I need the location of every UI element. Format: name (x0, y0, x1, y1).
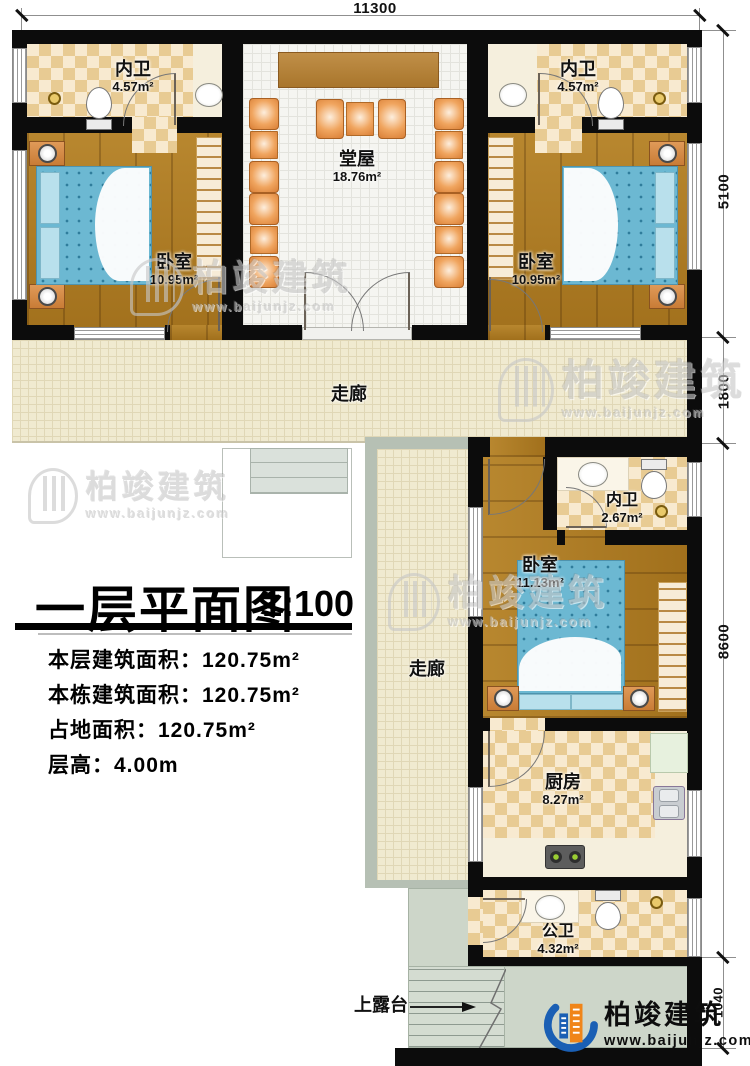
terrace-arrow-line (410, 1006, 462, 1008)
room-name: 走廊 (377, 660, 477, 679)
window-corridor-kitchen (468, 787, 483, 862)
wall-bottom-seg3 (243, 325, 302, 340)
room-name: 卧室 (124, 253, 224, 272)
room-label-bed-left: 卧室 10.95m² (124, 253, 224, 287)
wall-hall-left (222, 44, 243, 340)
chair-icon (378, 99, 406, 139)
title-underline (15, 623, 352, 630)
wall-hall-right (467, 44, 488, 340)
side-table-icon (435, 226, 463, 254)
foot-cushion (519, 694, 571, 710)
dim-ext (702, 443, 736, 444)
room-label-bath-tr: 内卫 4.57m² (528, 60, 628, 94)
nightstand (649, 284, 685, 309)
room-name: 内卫 (572, 493, 672, 510)
room-label-bath-tl: 内卫 4.57m² (83, 60, 183, 94)
side-table-icon (435, 131, 463, 159)
info-land-area: 占地面积：120.75m² (48, 714, 256, 744)
room-label-terrace: 上露台 (344, 996, 408, 1015)
room-name: 上露台 (344, 996, 408, 1015)
wall-right-lower (687, 443, 702, 1066)
wall-bathb-bottom (472, 957, 702, 966)
info-storey-height: 层高：4.00m (48, 749, 179, 779)
watermark-brand: 柏竣建筑 (86, 471, 230, 503)
wall-lowerunit-top-b (545, 437, 702, 457)
wall-lamp-icon (48, 92, 61, 105)
wall-kitchen-bathb (483, 877, 687, 890)
burner (569, 851, 581, 863)
sink-icon (535, 895, 565, 920)
toilet-tank (595, 890, 621, 901)
dim-top-label: 11300 (337, 0, 413, 17)
window-right-bath-middle (687, 462, 702, 517)
window-right-bath-bottom (687, 898, 702, 957)
terrace-arrow-icon (462, 1002, 476, 1012)
brand-logo-icon (540, 998, 598, 1052)
room-area: 8.27m² (513, 792, 613, 807)
wall-bed-kitchen-b (545, 718, 687, 731)
wall-lamp-icon (650, 896, 663, 909)
burner (550, 851, 562, 863)
lamp-icon (658, 144, 677, 163)
side-table-icon (250, 131, 278, 159)
entry-steps (250, 448, 348, 494)
room-name: 卧室 (486, 253, 586, 272)
chair-icon (249, 193, 279, 225)
title-underline-shadow (38, 633, 352, 635)
pillow (40, 227, 60, 279)
wall-divider-left-a (27, 117, 132, 133)
lamp-icon (658, 287, 677, 306)
lamp-icon (630, 689, 649, 708)
room-area: 4.57m² (528, 79, 628, 94)
room-name: 堂屋 (305, 150, 409, 169)
sink-icon (578, 462, 608, 487)
wall-lamp-icon (653, 92, 666, 105)
toilet-tank (641, 459, 667, 470)
floor-plan: 内卫 4.57m² 内卫 4.57m² 堂屋 18.76m² 卧室 10.95m… (0, 0, 750, 1066)
room-area: 4.32m² (508, 941, 608, 956)
room-label-corridor-v: 走廊 (377, 660, 477, 679)
chair-icon (434, 161, 464, 193)
sink-icon (499, 83, 527, 107)
wall-bottom-seg4 (412, 325, 467, 340)
pillow (655, 227, 675, 279)
wall-bathm-bottom-b (605, 530, 687, 545)
terrace-upper (408, 888, 472, 968)
wall-bathm-bottom-a (557, 530, 565, 545)
side-table-icon (250, 226, 278, 254)
window-left-bath (12, 48, 27, 103)
toilet-tank (598, 119, 624, 130)
brand-text: 柏竣建筑 www.baijunjz.com (604, 1002, 750, 1049)
pillow (655, 172, 675, 224)
chair-icon (249, 161, 279, 193)
chair-icon (434, 193, 464, 225)
bed-sheet (519, 637, 621, 691)
wall-bottom-seg6 (641, 325, 702, 340)
window-right-kitchen (687, 790, 702, 857)
nightstand (487, 686, 519, 711)
wall-bathm-left (543, 457, 557, 530)
drawing-scale: 1:100 (262, 583, 354, 625)
window-corridor-bedroom-middle (468, 507, 483, 617)
room-area: 11.13m² (490, 575, 590, 590)
toilet-tank (86, 119, 112, 130)
chair-icon (249, 256, 279, 288)
room-label-kitchen: 厨房 8.27m² (513, 773, 613, 807)
room-name: 公卫 (508, 924, 608, 941)
sink-basin (659, 805, 679, 818)
chair-icon (316, 99, 344, 139)
stove-icon (545, 845, 585, 869)
dim-right-5100: 5100 (716, 162, 733, 222)
wall-divider-left-b (177, 117, 222, 133)
door-gap-bed-middle (490, 437, 545, 457)
lamp-icon (494, 689, 513, 708)
wardrobe-middle (658, 582, 687, 712)
watermark-url: www.baijunjz.com (86, 506, 230, 521)
dim-ext (702, 957, 736, 958)
dim-right-1800: 1800 (716, 362, 733, 422)
window-left-bedroom (12, 150, 27, 300)
room-name: 内卫 (528, 60, 628, 79)
hall-sideboard (278, 52, 439, 88)
room-area: 2.67m² (572, 510, 672, 525)
lamp-icon (38, 144, 57, 163)
room-name: 内卫 (83, 60, 183, 79)
nightstand (29, 284, 65, 309)
dim-ext (702, 30, 736, 31)
nightstand (29, 141, 65, 166)
room-area: 10.95m² (124, 272, 224, 287)
wall-divider-right-a (488, 117, 535, 133)
chair-icon (434, 98, 464, 130)
wall-bottom-seg1 (12, 325, 74, 340)
brand-logo: 柏竣建筑 www.baijunjz.com (540, 998, 750, 1052)
dim-right-8600: 8600 (716, 612, 733, 672)
kitchen-sink-icon (653, 786, 685, 820)
room-area: 10.95m² (486, 272, 586, 287)
side-table-icon (346, 102, 374, 136)
stair-break-line (409, 967, 506, 1049)
lamp-icon (38, 287, 57, 306)
nightstand (649, 141, 685, 166)
window-right-bath (687, 47, 702, 103)
watermark-logo-icon (28, 468, 78, 524)
brand-name: 柏竣建筑 (604, 1002, 750, 1029)
room-area: 4.57m² (83, 79, 183, 94)
window-bottom-right-bedroom (550, 327, 641, 340)
room-name: 厨房 (513, 773, 613, 792)
wall-top (12, 30, 702, 44)
watermark-text: 柏竣建筑 www.baijunjz.com (86, 471, 230, 521)
room-label-bath-middle: 内卫 2.67m² (572, 493, 672, 525)
pillow (40, 172, 60, 224)
info-floor-area: 本层建筑面积：120.75m² (48, 644, 300, 674)
dim-ext (699, 8, 700, 30)
room-name: 卧室 (490, 556, 590, 575)
window-right-bedroom (687, 143, 702, 270)
window-bottom-left-bedroom (74, 327, 165, 340)
foot-cushion (571, 694, 623, 710)
chair-icon (434, 256, 464, 288)
room-label-corridor-h: 走廊 (299, 385, 399, 404)
page-title: 一层平面图 (35, 570, 295, 642)
nightstand (623, 686, 655, 711)
room-name: 走廊 (299, 385, 399, 404)
bathroom-bottom-door-strip (468, 897, 483, 945)
wall-bed-kitchen-a (483, 718, 490, 731)
fridge-icon (650, 733, 688, 773)
watermark: 柏竣建筑 www.baijunjz.com (28, 468, 230, 524)
sink-icon (195, 83, 223, 107)
info-building-area: 本栋建筑面积：120.75m² (48, 679, 300, 709)
dim-ext (702, 337, 736, 338)
dim-ext (21, 8, 22, 30)
sink-basin (659, 789, 679, 802)
room-label-bath-bottom: 公卫 4.32m² (508, 924, 608, 956)
brand-url: www.baijunjz.com (604, 1033, 750, 1049)
door-gap-kitchen (490, 718, 545, 731)
room-label-bed-middle: 卧室 11.13m² (490, 556, 590, 590)
wall-lowerunit-top-a (468, 437, 490, 457)
room-label-hall: 堂屋 18.76m² (305, 150, 409, 184)
chair-icon (249, 98, 279, 130)
room-label-bed-right: 卧室 10.95m² (486, 253, 586, 287)
room-area: 18.76m² (305, 169, 409, 184)
